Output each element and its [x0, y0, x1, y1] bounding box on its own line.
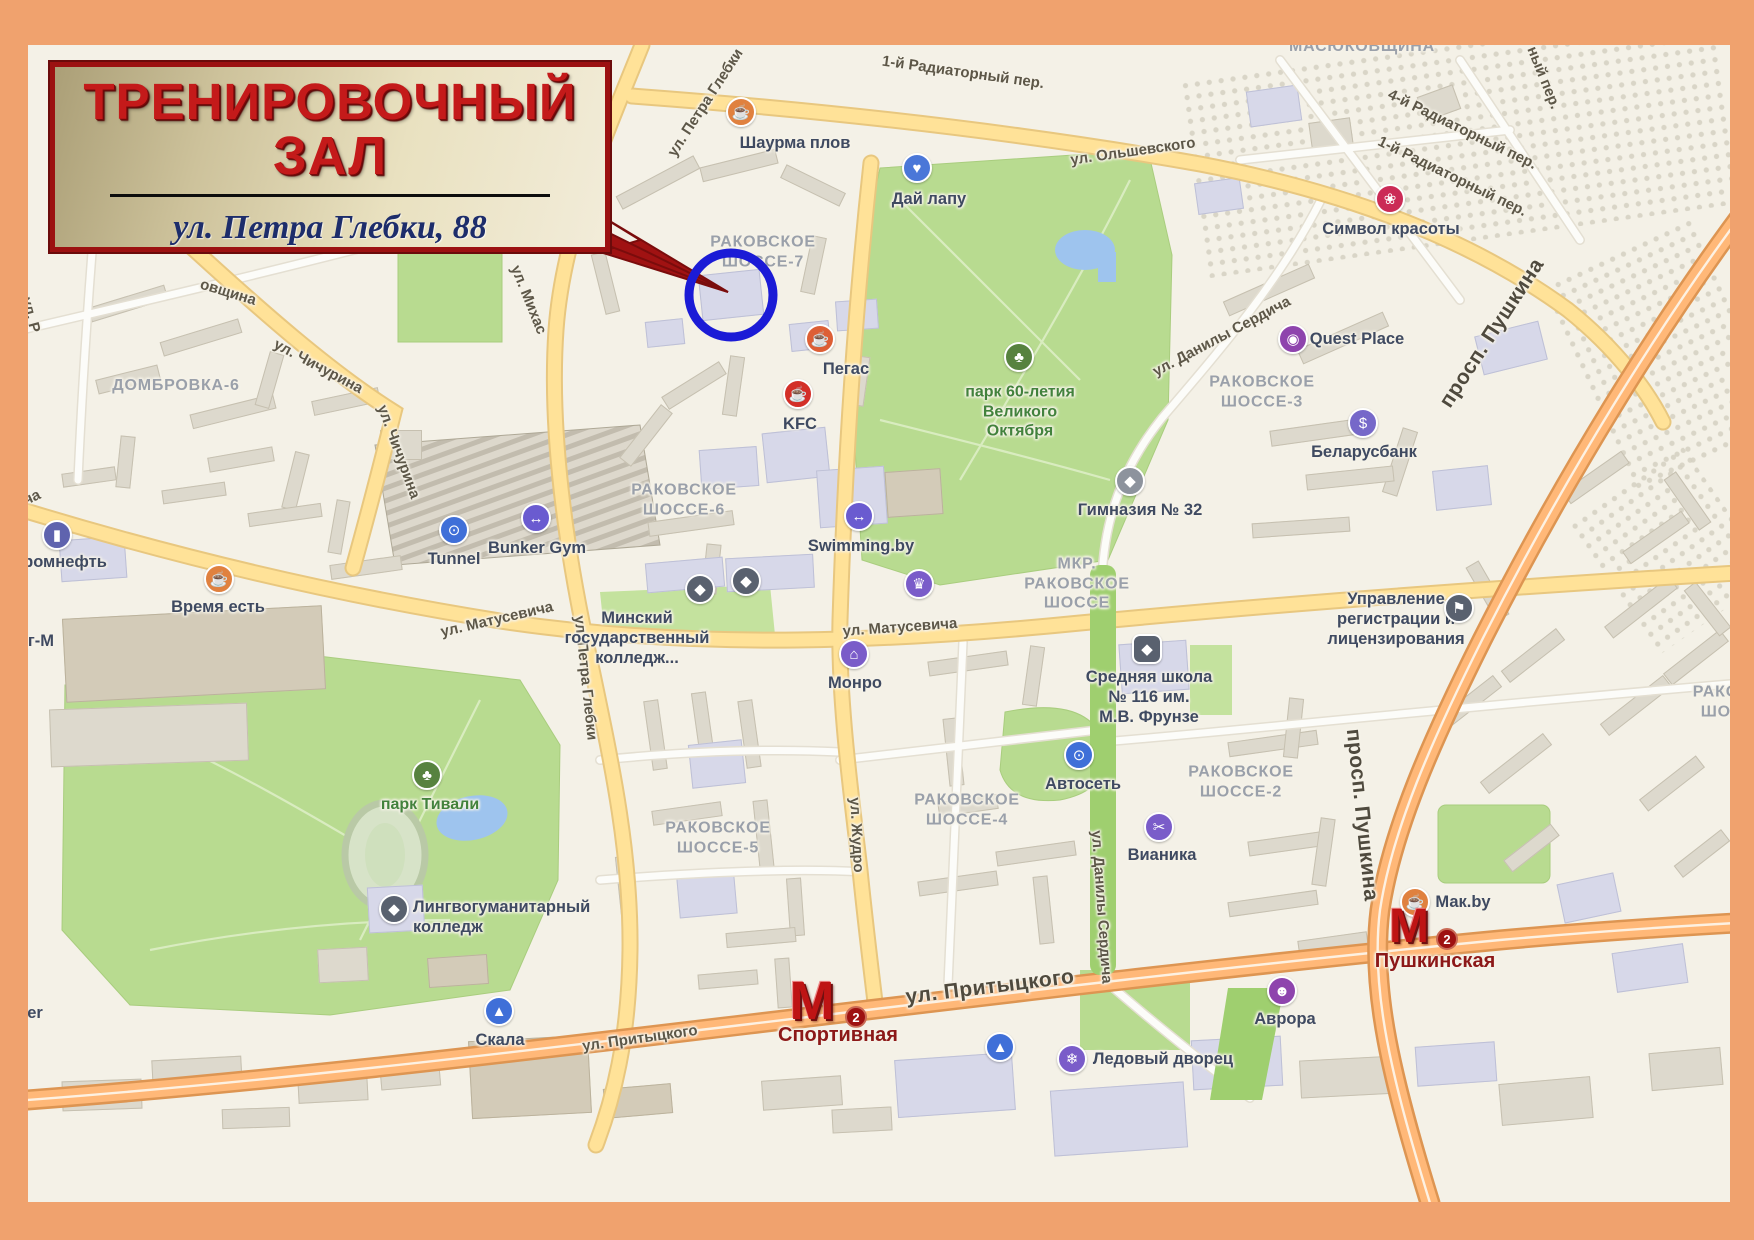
banner-address: ул. Петра Глебки, 88 — [173, 209, 487, 247]
location-marker-circle — [689, 253, 773, 337]
title-banner: ТРЕНИРОВОЧНЫЙ ЗАЛ ул. Петра Глебки, 88 — [50, 62, 610, 252]
frame-right — [1730, 0, 1754, 1240]
frame-bottom — [0, 1202, 1754, 1240]
frame-top — [0, 0, 1754, 45]
banner-title-line2: ЗАЛ — [273, 128, 387, 184]
banner-title-line1: ТРЕНИРОВОЧНЫЙ — [83, 75, 576, 128]
map-flyer: ул. Петра Глебки1-й Радиаторный пер.пер.… — [0, 0, 1754, 1240]
banner-divider — [110, 194, 550, 197]
frame-left — [0, 0, 28, 1240]
